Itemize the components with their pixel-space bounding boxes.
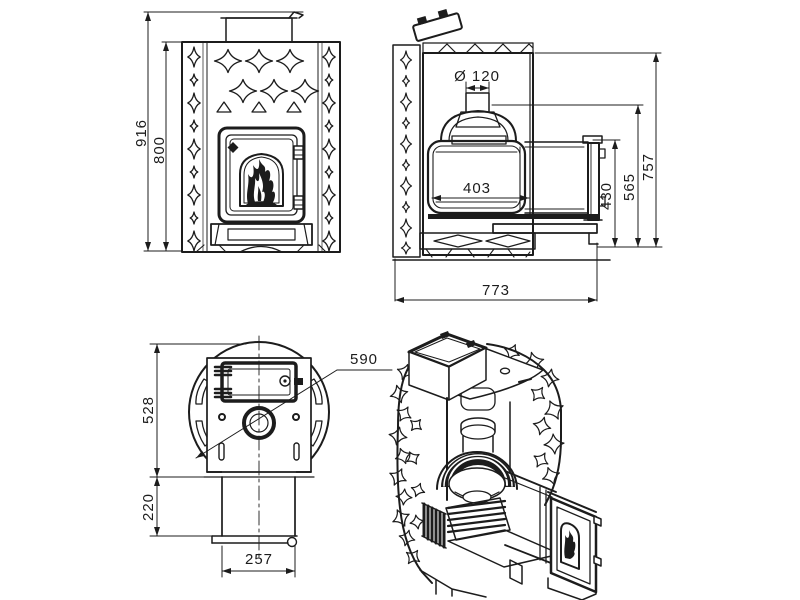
cutaway-3d-view <box>386 331 601 600</box>
ash-drawer-front <box>196 224 326 252</box>
battlement-edge <box>423 43 533 53</box>
dim-height-total-label: 757 <box>640 153 657 181</box>
cutaway-door <box>548 492 601 600</box>
dim-body-depth-label: 528 <box>140 396 157 424</box>
dim-firebox-depth-label: 403 <box>463 180 491 197</box>
stove-technical-drawing: 916 800 <box>0 0 800 600</box>
tunnel-side <box>525 142 588 213</box>
dim-overall-height-label: 916 <box>133 119 150 147</box>
base-side <box>393 214 610 260</box>
dim-body-height-label: 800 <box>151 136 168 164</box>
cutaway-cut-hatch <box>422 503 446 548</box>
dim-chimney-diameter-label: Ø 120 <box>454 68 500 85</box>
drawing-canvas: 916 800 <box>0 0 800 600</box>
water-tank-front <box>221 12 303 42</box>
dim-shell-diameter-label: 590 <box>350 351 378 368</box>
side-section-view: Ø 120 403 773 430 565 757 <box>393 6 662 301</box>
door-hinges-front <box>294 146 303 209</box>
dim-tunnel-length-label: 220 <box>140 493 157 521</box>
chimney-and-dome <box>441 93 516 144</box>
dim-height-firebox-top-label: 430 <box>598 182 615 210</box>
door-handle-front <box>228 142 239 153</box>
dim-height-chimney-top-label: 565 <box>621 173 638 201</box>
dim-total-depth-label: 773 <box>482 282 510 299</box>
front-view: 916 800 <box>133 12 340 252</box>
flame-icon <box>246 159 277 205</box>
cutaway-grate <box>446 498 510 540</box>
tank-lid-open <box>411 6 463 41</box>
side-shell-pattern <box>401 51 412 254</box>
top-view: 528 220 257 590 <box>140 336 392 577</box>
dim-tunnel-width-label: 257 <box>245 551 273 568</box>
firebox-door-front <box>219 128 304 222</box>
ornament-pattern-front <box>188 47 335 251</box>
